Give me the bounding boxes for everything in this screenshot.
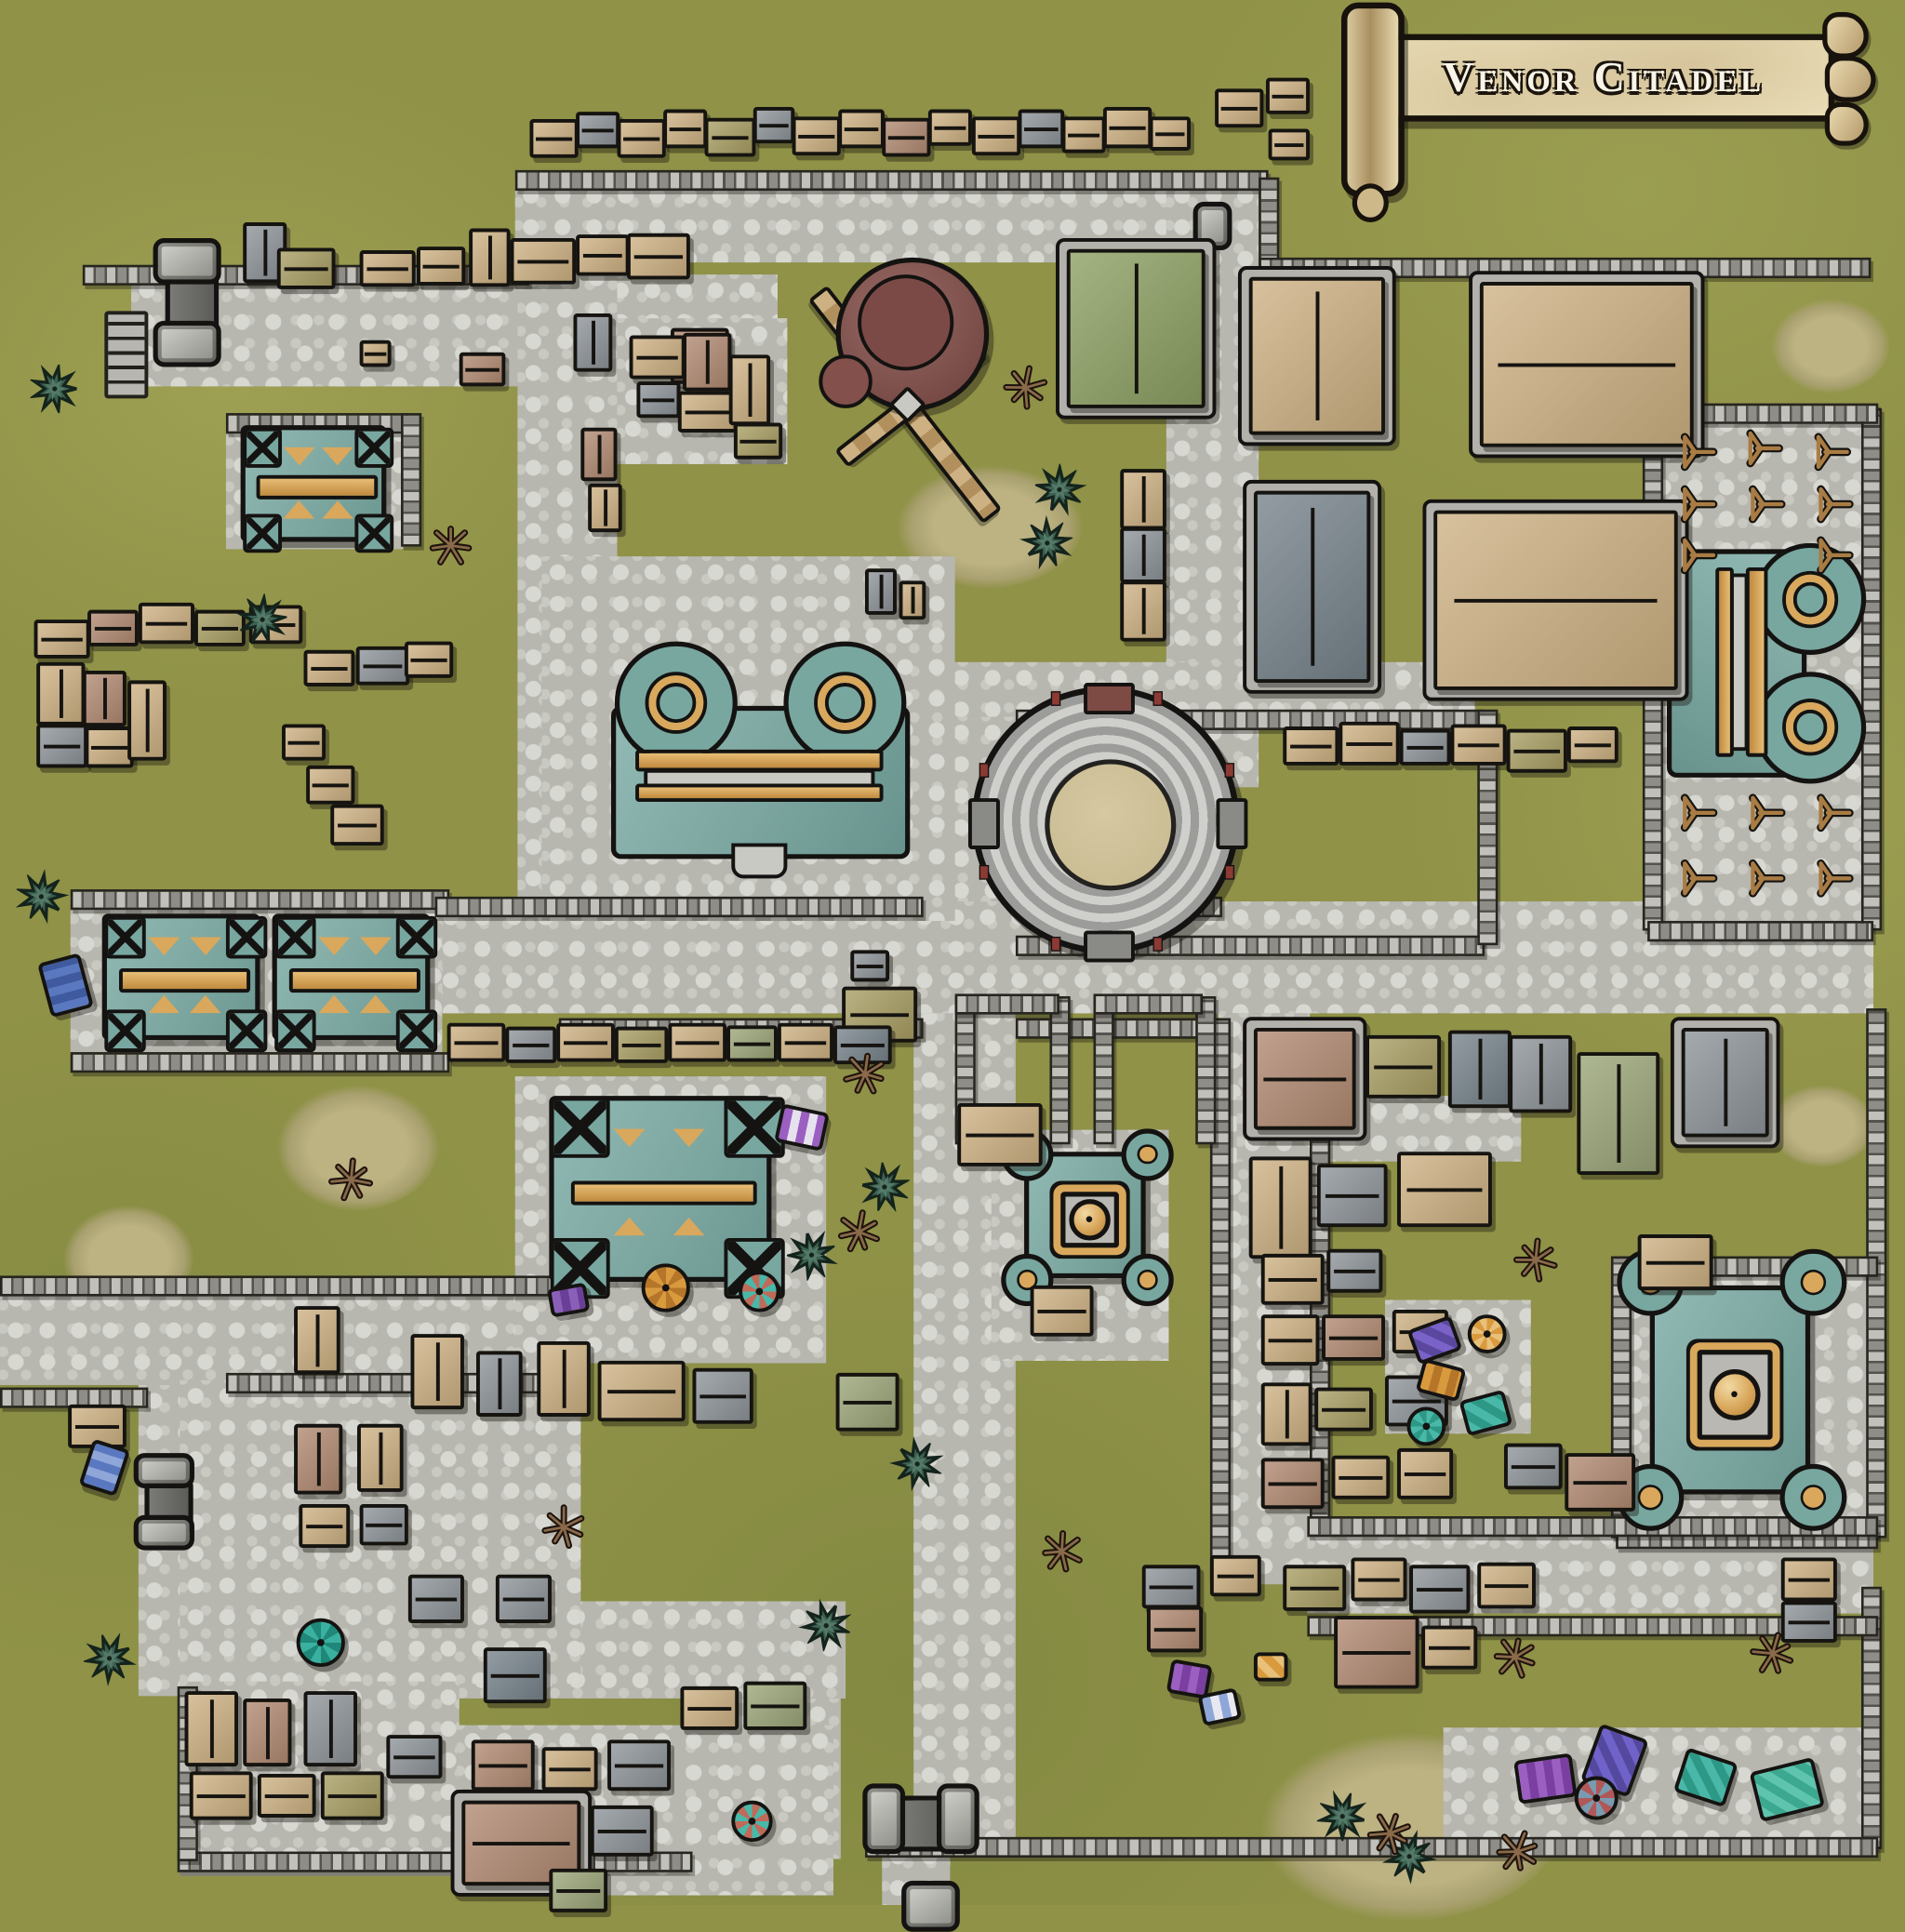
keep-gold-band [1746,567,1768,757]
barracks-gold-ridge [289,968,421,993]
house [277,247,336,288]
city-wall [71,889,450,910]
barracks-gold-ridge [571,1180,757,1205]
ballista [1745,428,1786,469]
gatehouse [134,1453,194,1550]
house [417,246,465,286]
city-wall [1647,921,1873,941]
market-tent [1513,1753,1578,1805]
scroll-curl [1825,102,1869,146]
house [258,1774,316,1818]
house [1062,116,1106,153]
arena-flag [1224,865,1233,880]
ballista [1747,858,1788,899]
manor-house [1480,282,1694,447]
house [304,650,355,686]
house [139,603,194,644]
arena-flag [979,865,989,880]
house [1120,527,1166,583]
city-wall [0,1275,566,1296]
scroll-roll-left [1341,3,1405,197]
house [630,335,686,379]
barracks [241,425,387,541]
arena-floor [1045,759,1177,891]
house [1577,1052,1659,1175]
house [243,1699,291,1766]
city-wall [1259,178,1279,268]
barracks-turret [243,513,282,553]
house [972,116,1020,155]
barracks-turret [104,1009,146,1051]
house [1283,726,1339,766]
house [850,950,889,981]
arena-gate [1084,930,1135,962]
ballista [1679,535,1720,576]
ballista [1813,432,1854,473]
dead-tree [1037,1526,1087,1577]
barracks-turret [243,428,282,467]
city-wall [1016,1019,1222,1039]
house [330,805,383,846]
barracks [102,913,260,1040]
parasol [297,1619,345,1667]
house [1397,1448,1453,1499]
house [405,642,453,678]
house [838,110,885,149]
dead-tree [1491,1825,1544,1878]
house [1314,1388,1373,1432]
barracks-ornament [673,1129,705,1148]
house [304,1691,357,1766]
house [683,333,731,392]
house [1326,1249,1382,1293]
house [1261,1314,1320,1366]
keep-apse [731,843,787,878]
house [1400,729,1451,766]
barracks-ornament [149,995,180,1014]
house [1261,1254,1325,1305]
parasol [739,1271,779,1312]
manor-house [1682,1028,1769,1138]
ballista [1679,793,1720,833]
ballista [1815,535,1856,576]
house [1509,1035,1572,1113]
house [793,116,841,155]
house [127,680,167,760]
watch-tower [901,1881,960,1932]
house [1351,1557,1406,1601]
gatehouse [862,1783,979,1854]
windmill-annex [819,354,872,407]
barracks-turret [354,428,393,467]
arena [972,686,1239,953]
house [1567,726,1619,763]
house [573,313,612,372]
house [1448,1031,1512,1109]
barracks-ornament [149,937,180,955]
barracks-ornament [190,995,221,1014]
house [607,1739,671,1791]
house [1261,1382,1312,1446]
dead-tree [428,523,474,569]
house [957,1103,1042,1166]
house [692,1368,753,1424]
house [836,1373,899,1432]
house [36,724,87,767]
arena-flag [1152,937,1162,952]
temple-tower [1779,1248,1846,1315]
barracks-ornament [284,447,315,466]
manor-house [1433,511,1678,690]
arena-flag [979,764,989,779]
house [484,1647,547,1703]
house [1283,1565,1346,1611]
house [1397,1152,1492,1227]
barracks-ornament [322,500,353,519]
house [753,107,794,143]
barracks-turret [354,513,393,553]
house [882,118,930,157]
windmill-roof [858,274,953,370]
barracks-gold-ridge [119,968,251,993]
house [1477,1563,1536,1609]
house [899,580,926,620]
house [460,353,506,387]
temple-tower [1779,1464,1846,1531]
house [1103,107,1152,148]
barracks-ornament [322,447,353,466]
house [1210,1555,1261,1596]
house [1365,1035,1441,1099]
house [743,1682,806,1730]
house [1507,729,1567,773]
house [598,1361,686,1421]
house [476,1351,523,1417]
parasol [1406,1406,1445,1446]
house [36,662,85,726]
house [636,381,680,418]
house [360,1504,408,1545]
house [663,110,707,149]
house [618,119,666,158]
gate-tower [134,1453,194,1488]
house [615,1027,668,1063]
ballista [1815,858,1856,899]
barracks-turret [104,916,146,958]
house [591,1805,654,1857]
city-wall [435,897,924,917]
barracks-ornament [318,937,350,955]
barracks-ornament [673,1217,705,1235]
barracks-turret [274,1009,316,1051]
barracks-ornament [190,937,221,955]
house [356,646,409,686]
house [1781,1557,1837,1601]
house [588,484,622,532]
house [410,1334,463,1409]
house [1019,110,1065,149]
barracks [549,1096,771,1282]
house [1120,469,1166,529]
keep-tower [615,642,737,764]
pine-tree [31,365,79,413]
house [542,1747,598,1791]
city-wall [226,1373,579,1393]
house [185,1691,238,1766]
house [865,568,897,615]
house [496,1575,552,1623]
ballista [1679,858,1720,899]
manor-house [1249,277,1385,435]
house [1249,1156,1312,1259]
wall-stairs [104,311,148,398]
market-tent [1254,1652,1288,1681]
city-wall [1195,996,1216,1144]
house [556,1023,615,1062]
house [1339,722,1399,766]
house [294,1424,342,1495]
house [408,1575,464,1623]
barracks [273,913,431,1040]
house [580,428,617,481]
barracks-turret [225,1009,267,1051]
barracks-turret [395,916,437,958]
ballista [1747,484,1788,525]
dirt-patch [1769,1085,1876,1167]
house [469,229,510,287]
barracks-turret [395,1009,437,1051]
house [1322,1314,1385,1361]
arena-flag [1152,692,1162,707]
house [321,1771,384,1819]
city-map: Venor Citadel [0,0,1905,1905]
barracks-ornament [360,937,392,955]
barracks-ornament [614,1129,646,1148]
keep-gold-band [1715,567,1734,757]
house [1266,78,1310,114]
house [447,1023,506,1062]
title-scroll: Venor Citadel [1341,3,1871,151]
gatehouse [153,238,221,366]
house [726,1025,778,1061]
house [549,1869,607,1912]
house [1334,1616,1419,1688]
ballista [1747,793,1788,833]
house [627,233,690,280]
house [472,1739,535,1791]
house [1215,88,1263,127]
arena-flag [1224,764,1233,779]
house [34,620,90,659]
house [511,238,577,285]
house [1504,1444,1563,1490]
parasol [731,1801,772,1842]
barracks-ornament [284,500,315,519]
dead-tree [1488,1630,1542,1684]
manor-house [1254,491,1370,683]
keep-gold-band [635,783,884,802]
arena-flag [1051,937,1060,952]
dead-tree [1503,1227,1568,1292]
keep-tower [1754,672,1866,783]
city-wall [1094,996,1114,1144]
gate-tower [862,1783,904,1854]
house [386,1735,442,1779]
pine-tree [783,1227,840,1284]
house [1150,116,1191,151]
temple-dome [1070,1199,1111,1240]
house [360,340,392,367]
city-wall [1094,993,1204,1014]
house [1317,1164,1388,1227]
house [576,112,619,148]
house [729,354,770,425]
map-title: Venor Citadel [1414,34,1793,122]
scroll-curl [1825,56,1876,102]
arena-flag [1051,692,1060,707]
house [1451,724,1507,765]
barracks-turret [225,916,267,958]
house [1565,1453,1635,1512]
keep-tower [784,642,906,764]
house [668,1023,726,1062]
house [360,250,416,286]
house [85,726,133,767]
pine-tree [76,1626,141,1691]
temple [1650,1286,1810,1495]
manor-house [1067,249,1206,408]
house [299,1504,350,1548]
castle-keep [1670,544,1867,773]
pine-tree [7,862,75,930]
house [83,671,127,726]
market-tent [1197,1687,1242,1726]
house [529,119,578,158]
house [1421,1626,1477,1670]
barracks-ornament [360,995,392,1014]
manor-house [1254,1028,1356,1130]
dirt-patch [1771,299,1890,393]
barracks-ornament [614,1217,646,1235]
gate-tower [153,238,221,285]
barracks-turret [724,1098,784,1158]
arena-gate [1216,798,1247,849]
gate-tower [938,1783,979,1854]
house [306,766,354,805]
house [537,1341,590,1417]
parasol [642,1263,690,1312]
house [1269,128,1310,160]
arena-gate [968,798,1000,849]
house [1638,1234,1713,1290]
house [734,423,782,460]
house [705,118,756,157]
temple [1024,1152,1146,1278]
castle-keep [605,642,906,858]
parasol [1575,1777,1619,1820]
ballista [1815,484,1856,525]
ballista [1815,793,1856,833]
house [190,1771,253,1819]
house [282,724,326,760]
house [1409,1565,1470,1613]
house [1332,1456,1391,1499]
barracks-turret [550,1098,610,1158]
barracks-ornament [318,995,350,1014]
house [1147,1606,1203,1653]
house [294,1306,340,1374]
scroll-curl [1822,12,1869,59]
barracks-gold-ridge [257,475,379,500]
house [87,610,139,646]
barracks-turret [274,916,316,958]
house [680,1686,739,1730]
house [1120,580,1166,641]
house [576,234,629,275]
ballista [1679,484,1720,525]
city-wall [71,1052,450,1073]
house [928,110,972,146]
gate-tower [153,321,221,367]
temple-tower [1122,1128,1174,1180]
city-wall [1049,996,1070,1144]
gate-tower [134,1515,194,1551]
parasol [1468,1314,1507,1353]
house [1261,1458,1325,1509]
house [778,1023,833,1062]
house [1031,1286,1094,1337]
house [357,1424,404,1492]
ballista [1679,432,1720,473]
city-wall [955,993,1059,1014]
house [1142,1565,1201,1608]
house [505,1027,556,1063]
city-wall [401,413,421,547]
